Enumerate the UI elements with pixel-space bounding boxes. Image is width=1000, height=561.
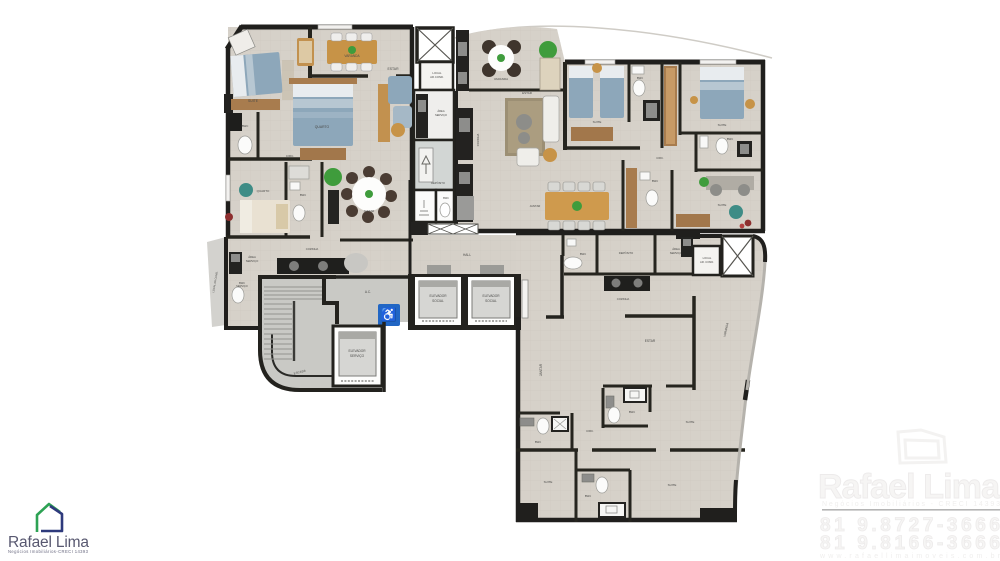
svg-text:VARANDA: VARANDA (494, 77, 508, 81)
svg-text:SUITE: SUITE (718, 123, 727, 127)
svg-text:BWC: BWC (300, 193, 306, 197)
svg-text:ELEVADOR: ELEVADOR (348, 349, 366, 353)
svg-text:www.rafaellimaimoveis.com.br: www.rafaellimaimoveis.com.br (819, 553, 1000, 560)
svg-text:JANTAR: JANTAR (364, 209, 375, 213)
svg-text:COZINHA: COZINHA (476, 134, 480, 147)
svg-text:BWC: BWC (443, 197, 449, 200)
svg-text:BWC: BWC (585, 494, 591, 498)
svg-text:ESTAR: ESTAR (645, 339, 656, 343)
svg-text:ÁREA: ÁREA (437, 109, 445, 113)
svg-text:BWC: BWC (637, 76, 643, 80)
svg-text:SERVIÇO: SERVIÇO (435, 113, 447, 117)
svg-text:ELEVADOR: ELEVADOR (482, 294, 500, 298)
svg-text:SERVIÇO: SERVIÇO (246, 259, 259, 263)
svg-text:CIRC.: CIRC. (586, 429, 594, 433)
svg-text:CIRC.: CIRC. (286, 154, 294, 158)
svg-text:SOCIAL: SOCIAL (432, 299, 444, 303)
svg-text:COZINHA: COZINHA (306, 247, 319, 251)
svg-text:BWC: BWC (535, 440, 541, 444)
svg-text:SUITE: SUITE (668, 483, 677, 487)
svg-text:AR.COND.: AR.COND. (430, 75, 444, 79)
svg-text:ELEVADOR: ELEVADOR (429, 294, 447, 298)
svg-text:SERVIÇO: SERVIÇO (236, 284, 248, 288)
svg-text:ESTAR: ESTAR (387, 67, 399, 71)
svg-text:BWC: BWC (580, 252, 586, 256)
svg-text:SUITE: SUITE (718, 203, 727, 207)
svg-text:Negócios Imobiliários-CRECI 14: Negócios Imobiliários-CRECI 14393 (8, 549, 89, 554)
svg-text:VARANDA: VARANDA (344, 54, 360, 58)
svg-text:CIRC.: CIRC. (656, 156, 664, 160)
svg-text:BWC: BWC (727, 137, 733, 141)
svg-text:BWC: BWC (652, 179, 658, 183)
svg-text:ESTAR: ESTAR (522, 91, 533, 95)
svg-text:SUITE: SUITE (593, 120, 602, 124)
svg-text:SOCIAL: SOCIAL (485, 299, 497, 303)
svg-text:JANTAR: JANTAR (539, 363, 543, 376)
svg-text:SERVIÇO: SERVIÇO (350, 354, 365, 358)
svg-text:81 9.8166-3666: 81 9.8166-3666 (820, 533, 1000, 554)
svg-text:AR. COND.: AR. COND. (700, 260, 714, 264)
svg-text:COZINHA: COZINHA (617, 297, 630, 301)
svg-text:JANTAR: JANTAR (530, 204, 541, 208)
svg-text:SUITE: SUITE (544, 480, 553, 484)
svg-text:QUARTO: QUARTO (315, 125, 330, 129)
svg-text:BWC: BWC (242, 124, 249, 128)
svg-text:SUITE: SUITE (686, 420, 695, 424)
svg-text:♿: ♿ (381, 307, 397, 322)
svg-text:DEPÓSITO: DEPÓSITO (619, 250, 634, 255)
svg-text:BWC: BWC (629, 410, 635, 414)
svg-text:LOCAL: LOCAL (703, 256, 712, 260)
svg-text:HALL: HALL (463, 253, 471, 257)
svg-text:SUITE: SUITE (248, 99, 259, 103)
svg-text:QUARTO: QUARTO (257, 189, 270, 193)
svg-text:A.C.: A.C. (365, 290, 371, 294)
